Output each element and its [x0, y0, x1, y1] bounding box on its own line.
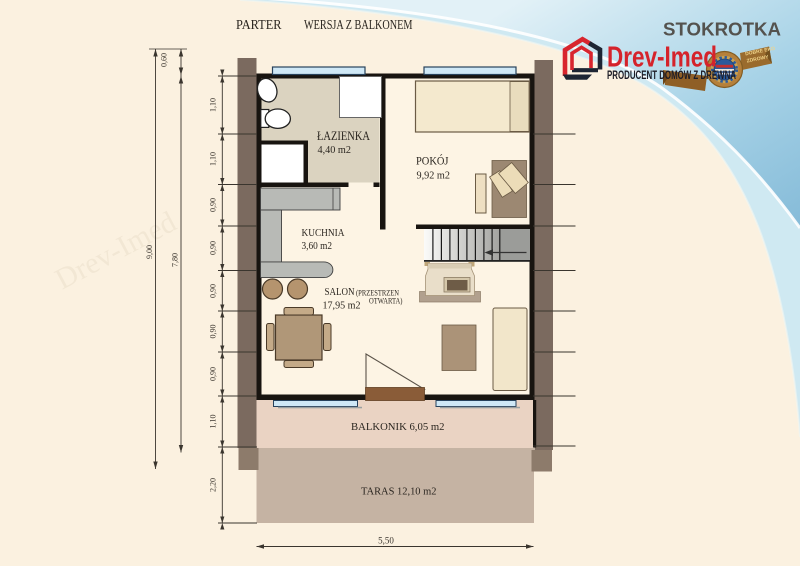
svg-text:POKÓJ: POKÓJ	[416, 153, 449, 167]
svg-text:ŁAZIENKA: ŁAZIENKA	[317, 128, 370, 143]
svg-text:0,90: 0,90	[209, 284, 218, 298]
svg-text:0,60: 0,60	[160, 53, 169, 67]
svg-text:BALKONIK 6,05 m2: BALKONIK 6,05 m2	[351, 421, 445, 433]
svg-text:0,90: 0,90	[209, 198, 218, 212]
svg-text:0,90: 0,90	[209, 241, 218, 255]
svg-text:Drev-Imed: Drev-Imed	[607, 42, 717, 74]
svg-text:STOKROTKA: STOKROTKA	[663, 19, 781, 40]
svg-text:1,10: 1,10	[209, 152, 218, 166]
svg-text:2,20: 2,20	[209, 478, 218, 492]
svg-text:SALON: SALON	[325, 287, 355, 298]
svg-text:5,50: 5,50	[378, 536, 394, 546]
svg-text:0,90: 0,90	[209, 367, 218, 381]
svg-text:7,80: 7,80	[171, 253, 180, 267]
svg-text:0,90: 0,90	[209, 325, 218, 339]
svg-text:9,92 m2: 9,92 m2	[417, 170, 451, 182]
svg-text:17,95 m2: 17,95 m2	[323, 300, 361, 312]
svg-text:PRODUCENT DOMÓW Z DREWNA: PRODUCENT DOMÓW Z DREWNA	[607, 69, 736, 82]
svg-text:4,40 m2: 4,40 m2	[318, 144, 352, 156]
svg-text:TARAS 12,10 m2: TARAS 12,10 m2	[361, 486, 437, 498]
svg-text:1,10: 1,10	[209, 98, 218, 112]
svg-text:OTWARTA): OTWARTA)	[369, 296, 403, 306]
svg-text:3,60 m2: 3,60 m2	[302, 240, 333, 252]
svg-text:KUCHNIA: KUCHNIA	[302, 227, 345, 239]
svg-text:9,00: 9,00	[145, 245, 154, 259]
svg-text:1,10: 1,10	[209, 415, 218, 429]
svg-text:WERSJA Z BALKONEM: WERSJA Z BALKONEM	[304, 17, 413, 32]
svg-text:PARTER: PARTER	[236, 17, 282, 32]
